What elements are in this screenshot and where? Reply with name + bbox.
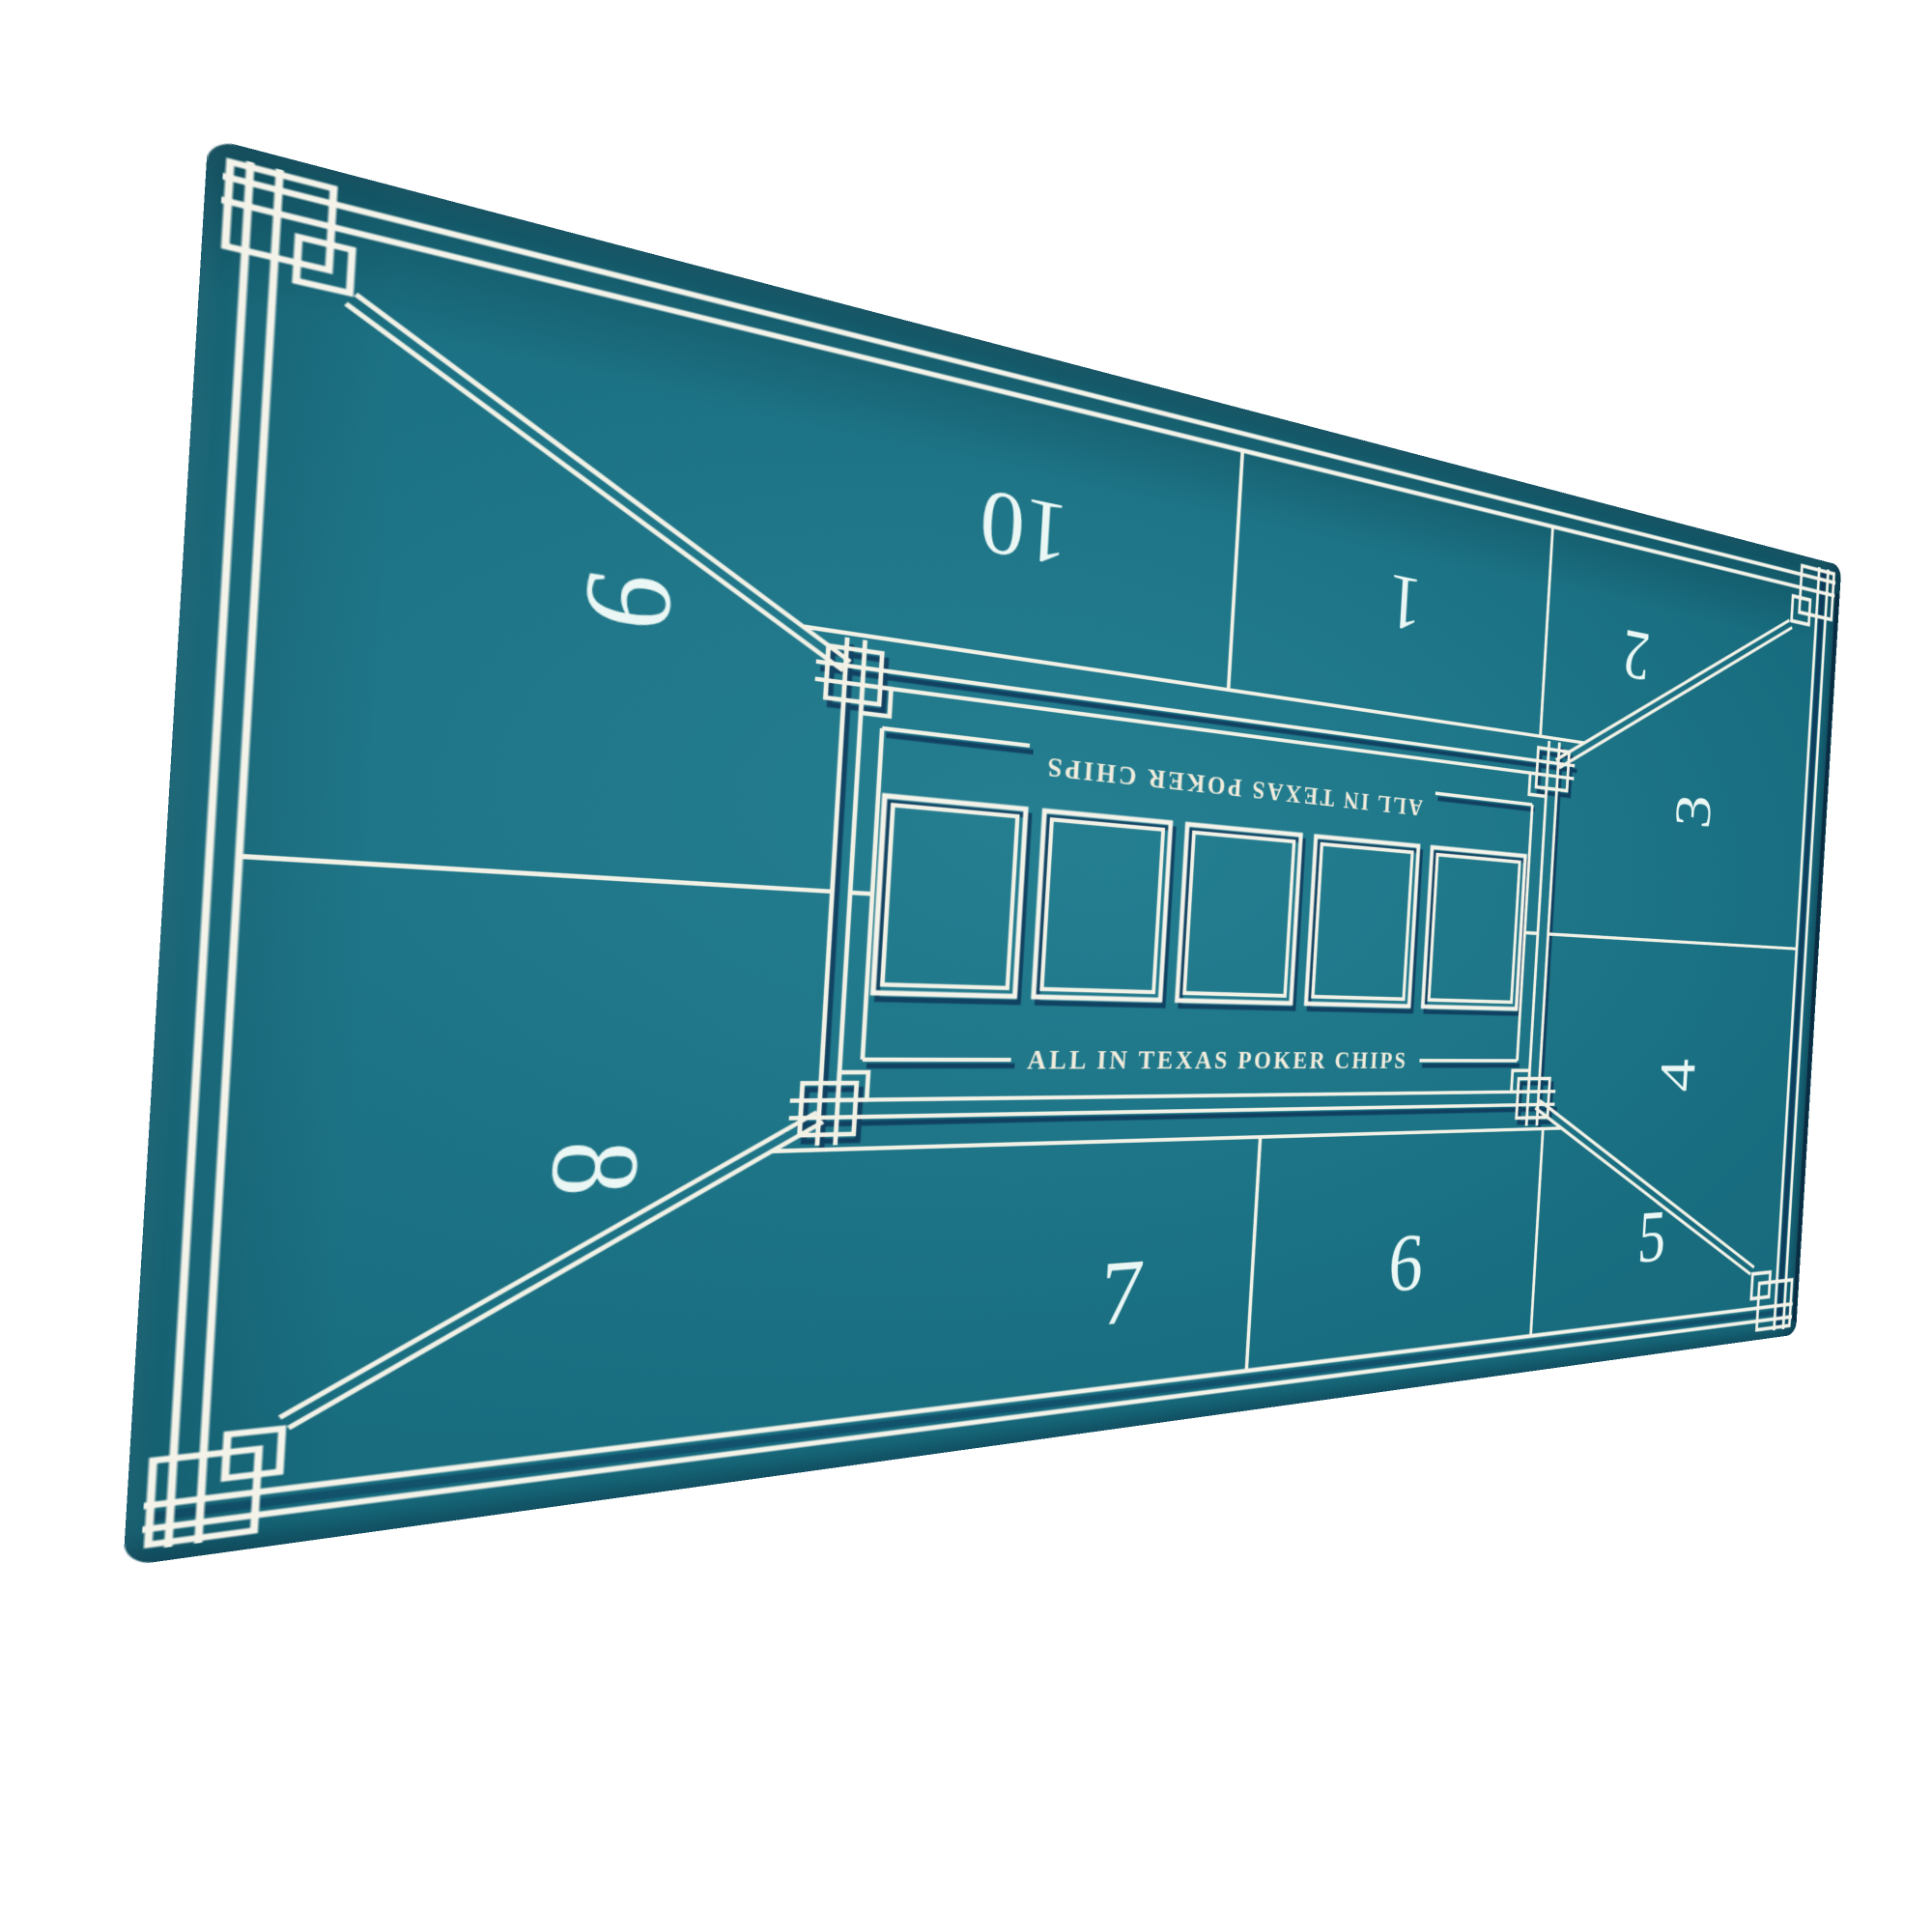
bottom-edge-navy-band [150, 1311, 1790, 1518]
card-slot [1177, 824, 1300, 1003]
divider-seat1-seat2 [1541, 528, 1553, 736]
outer-border [141, 155, 1836, 1550]
divider-seat7-seat6 [1246, 1137, 1260, 1369]
seat-numbers: 1 2 3 4 5 6 7 8 9 10 [512, 382, 1731, 1407]
brand-text-top: ALL IN TEXAS POKER CHIPS [1044, 751, 1424, 820]
card-slot [873, 796, 1026, 997]
seat-4-label: 4 [1649, 1059, 1706, 1093]
bottom-sections-boundary [772, 1128, 1561, 1151]
divider-seat9-seat8 [242, 857, 833, 892]
seat-6-label: 6 [1386, 1216, 1426, 1309]
divider-seat6-seat5 [1531, 1128, 1544, 1334]
section-divider-lines [205, 217, 1817, 1496]
brand-text-bottom: ALL IN TEXAS POKER CHIPS [1027, 1046, 1408, 1076]
white-studio-background: ALL IN TEXAS POKER CHIPS ALL IN TEXAS PO… [0, 0, 1932, 1932]
card-slot [1423, 847, 1525, 1009]
seat-9-label: 9 [558, 562, 698, 638]
seat-5-label: 5 [1635, 1196, 1667, 1279]
diagonal-section-lines [279, 293, 1793, 1430]
seat-3-label: 3 [1664, 791, 1721, 832]
seat-1-label: 1 [1386, 557, 1424, 648]
card-slot [1034, 810, 1171, 1000]
seat-7-label: 7 [1097, 1240, 1147, 1345]
seat-8-label: 8 [525, 1139, 666, 1199]
divider-seat10-seat1 [1229, 452, 1243, 690]
divider-seat3-seat4 [1548, 934, 1796, 949]
center-corner-ornament [838, 1072, 868, 1100]
card-slot [1306, 837, 1418, 1007]
mat-edge-shading [148, 159, 1838, 1548]
seat-2-label: 2 [1621, 614, 1652, 696]
seat-10-label: 10 [978, 469, 1071, 585]
poker-layout-mat: ALL IN TEXAS POKER CHIPS ALL IN TEXAS PO… [123, 137, 1841, 1566]
corner-ornament-square [1751, 1272, 1771, 1299]
mat-artwork: ALL IN TEXAS POKER CHIPS ALL IN TEXAS PO… [123, 137, 1841, 1566]
